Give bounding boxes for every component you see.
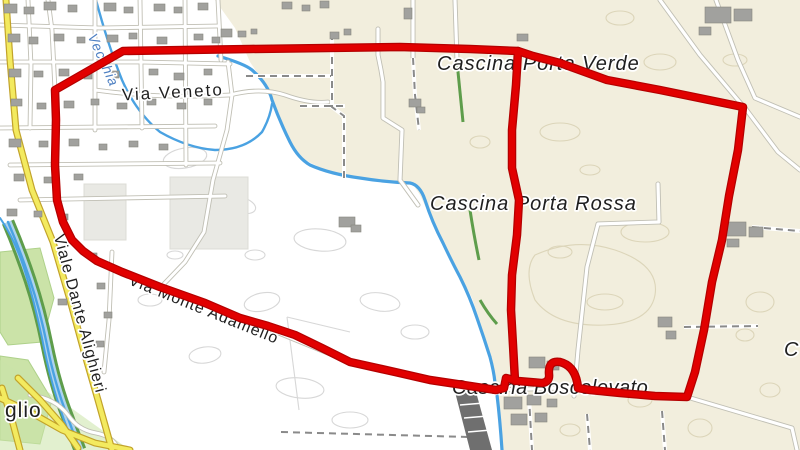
map-svg: Via Veneto Cascina Porta Verde Cascina P…: [0, 0, 800, 450]
label-town-partial: glio: [5, 399, 42, 422]
label-cascina-partial: C: [784, 339, 799, 361]
map-canvas[interactable]: Via Veneto Cascina Porta Verde Cascina P…: [0, 0, 800, 450]
label-cascina-porta-rossa: Cascina Porta Rossa: [430, 193, 637, 215]
